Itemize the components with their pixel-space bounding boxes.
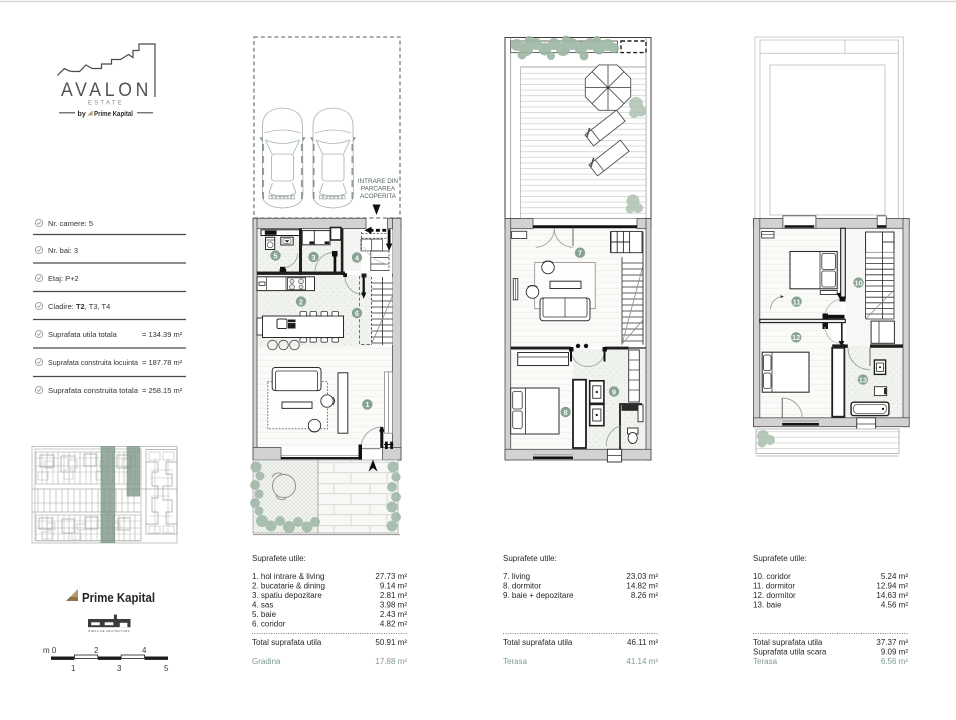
svg-text:9.14 m²: 9.14 m²: [380, 582, 407, 591]
svg-text:Etaj: P+2: Etaj: P+2: [48, 274, 79, 283]
svg-text:7. living: 7. living: [503, 572, 530, 581]
svg-text:= 134.39 m²: = 134.39 m²: [142, 330, 183, 339]
svg-text:m 0: m 0: [43, 646, 57, 655]
svg-text:4.56 m²: 4.56 m²: [881, 601, 908, 610]
svg-text:ESTATE: ESTATE: [88, 101, 124, 107]
svg-text:2: 2: [94, 646, 99, 655]
svg-text:Terasa: Terasa: [503, 657, 528, 666]
svg-text:8. dormitor: 8. dormitor: [503, 582, 542, 591]
svg-text:Total suprafata utila: Total suprafata utila: [753, 638, 823, 647]
svg-text:6.56 m²: 6.56 m²: [881, 657, 908, 666]
svg-text:13: 13: [859, 375, 867, 384]
svg-text:Total suprafata utila: Total suprafata utila: [503, 638, 573, 647]
svg-text:Suprafata construita totala: Suprafata construita totala: [48, 386, 139, 395]
svg-text:= 187.78 m²: = 187.78 m²: [142, 358, 183, 367]
svg-text:1: 1: [365, 400, 369, 409]
svg-text:41.14 m²: 41.14 m²: [626, 657, 658, 666]
svg-text:13. baie: 13. baie: [753, 601, 782, 610]
svg-text:8: 8: [564, 408, 568, 417]
svg-text:9. baie + depozitare: 9. baie + depozitare: [503, 591, 574, 600]
svg-text:1. hol intrare & living: 1. hol intrare & living: [252, 572, 324, 581]
svg-text:3: 3: [117, 664, 122, 673]
svg-text:5: 5: [273, 251, 277, 260]
svg-text:Cladire: T2, T3, T4: Cladire: T2, T3, T4: [48, 302, 110, 311]
svg-text:= 258.15 m²: = 258.15 m²: [142, 386, 183, 395]
svg-text:Suprafete utile:: Suprafete utile:: [252, 554, 306, 563]
svg-text:12.94 m²: 12.94 m²: [876, 582, 908, 591]
svg-text:Suprafete utile:: Suprafete utile:: [753, 554, 807, 563]
svg-text:14.63 m²: 14.63 m²: [876, 591, 908, 600]
svg-text:5: 5: [164, 664, 169, 673]
svg-text:Nr. camere: 5: Nr. camere: 5: [48, 219, 93, 228]
svg-text:12. dormitor: 12. dormitor: [753, 591, 796, 600]
svg-text:2. bucatarie & dining: 2. bucatarie & dining: [252, 582, 325, 591]
svg-text:Gradina: Gradina: [252, 657, 281, 666]
svg-text:PARCAREA: PARCAREA: [361, 186, 396, 193]
svg-text:8.26 m²: 8.26 m²: [631, 591, 658, 600]
svg-text:AVALON: AVALON: [61, 80, 152, 101]
svg-text:5. baie: 5. baie: [252, 610, 277, 619]
svg-text:10: 10: [854, 278, 862, 287]
svg-text:9.09 m²: 9.09 m²: [881, 648, 908, 657]
svg-text:Suprafete utile:: Suprafete utile:: [503, 554, 557, 563]
svg-text:by: by: [78, 109, 86, 118]
svg-text:37.37 m²: 37.37 m²: [876, 638, 908, 647]
svg-text:3.98 m²: 3.98 m²: [380, 601, 407, 610]
svg-text:2.43 m²: 2.43 m²: [380, 610, 407, 619]
svg-text:3. spatiu depozitare: 3. spatiu depozitare: [252, 591, 322, 600]
svg-text:3: 3: [311, 253, 315, 262]
svg-text:7: 7: [578, 249, 582, 258]
svg-text:Terasa: Terasa: [753, 657, 778, 666]
svg-text:Prime Kapital: Prime Kapital: [94, 109, 133, 118]
svg-text:14.82 m²: 14.82 m²: [626, 582, 658, 591]
svg-text:46.11 m²: 46.11 m²: [627, 638, 658, 647]
svg-text:Suprafata utila scara: Suprafata utila scara: [753, 648, 827, 657]
svg-text:INTRARE DIN: INTRARE DIN: [358, 178, 399, 185]
svg-text:2: 2: [299, 297, 303, 306]
svg-text:Prime Kapital: Prime Kapital: [82, 590, 155, 605]
svg-text:11: 11: [793, 297, 801, 306]
svg-text:9: 9: [612, 387, 616, 396]
svg-text:23.03 m²: 23.03 m²: [626, 572, 658, 581]
svg-text:11. dormitor: 11. dormitor: [753, 582, 795, 591]
svg-text:BIROU DE ARHITECTURA: BIROU DE ARHITECTURA: [89, 629, 131, 633]
svg-text:5.24 m²: 5.24 m²: [881, 572, 908, 581]
svg-text:27.73 m²: 27.73 m²: [375, 572, 407, 581]
svg-text:ACOPERITA: ACOPERITA: [360, 193, 397, 200]
svg-text:6. coridor: 6. coridor: [252, 620, 286, 629]
svg-text:17.88 m²: 17.88 m²: [375, 657, 407, 666]
svg-text:Nr. bai: 3: Nr. bai: 3: [48, 246, 78, 255]
svg-text:1: 1: [71, 664, 76, 673]
svg-text:6: 6: [355, 309, 359, 318]
svg-text:Total suprafata utila: Total suprafata utila: [252, 638, 322, 647]
svg-text:2.81 m²: 2.81 m²: [380, 591, 407, 600]
svg-text:50.91 m²: 50.91 m²: [375, 638, 407, 647]
svg-text:4.82 m²: 4.82 m²: [380, 620, 407, 629]
svg-text:4: 4: [142, 646, 147, 655]
svg-text:Suprafata utila totala: Suprafata utila totala: [48, 330, 118, 339]
svg-text:Suprafata construita locuinta: Suprafata construita locuinta: [48, 358, 139, 367]
svg-text:10. coridor: 10. coridor: [753, 572, 791, 581]
svg-text:4. sas: 4. sas: [252, 601, 273, 610]
svg-text:12: 12: [792, 333, 800, 342]
